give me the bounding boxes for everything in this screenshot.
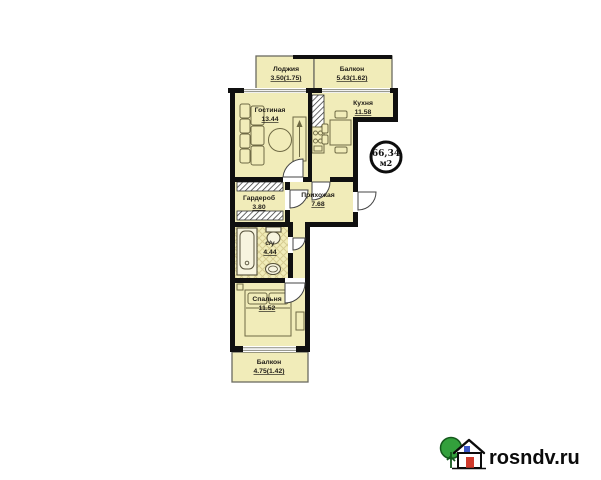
floor-plan-canvas: Лоджия 3.50(1.75) Балкон 5.43(1.62) Гост… — [0, 0, 601, 480]
bedroom-window — [243, 346, 296, 352]
house-window-icon — [464, 446, 470, 452]
room-area: 4.75(1.42) — [254, 368, 285, 375]
living-room-window — [244, 88, 306, 93]
sink-icon — [266, 264, 281, 275]
loggia-floor — [256, 56, 314, 90]
watermark-text: rosndv.ru — [489, 447, 580, 469]
room-label: Прихожая — [301, 192, 335, 199]
house-door-icon — [466, 457, 474, 468]
cabinet-icon — [293, 117, 306, 161]
room-area: 3.50(1.75) — [271, 75, 302, 82]
floor-plan-page: Лоджия 3.50(1.75) Балкон 5.43(1.62) Гост… — [0, 0, 601, 480]
kitchen-window — [322, 88, 390, 93]
room-label: Лоджия — [273, 66, 299, 73]
bathtub-icon — [237, 228, 257, 275]
room-label: Спальня — [252, 296, 281, 303]
room-label: Гостиная — [255, 107, 286, 114]
room-label: Балкон — [257, 359, 282, 366]
room-label: Кухня — [353, 100, 373, 107]
room-area: 11.58 — [355, 109, 372, 116]
room-area: 5.43(1.62) — [337, 75, 368, 82]
vent-shaft-icon — [312, 95, 324, 127]
total-area-unit: м2 — [380, 158, 393, 168]
room-area: 4.44 — [263, 249, 276, 256]
room-area: 11.52 — [259, 305, 276, 312]
room-label: Балкон — [340, 66, 365, 73]
room-area: 13.44 — [261, 116, 278, 123]
round-table-icon — [269, 129, 292, 152]
room-label: с/у — [265, 240, 275, 247]
room-area: 3.80 — [252, 204, 265, 211]
total-area-badge: 66,34 м2 — [371, 142, 401, 172]
bottom-balcony-floor — [232, 352, 308, 382]
room-area: 7.68 — [311, 201, 324, 208]
room-label: Гардероб — [243, 194, 275, 202]
balcony-parapet-wall — [293, 55, 392, 59]
top-balcony-floor — [314, 56, 392, 90]
